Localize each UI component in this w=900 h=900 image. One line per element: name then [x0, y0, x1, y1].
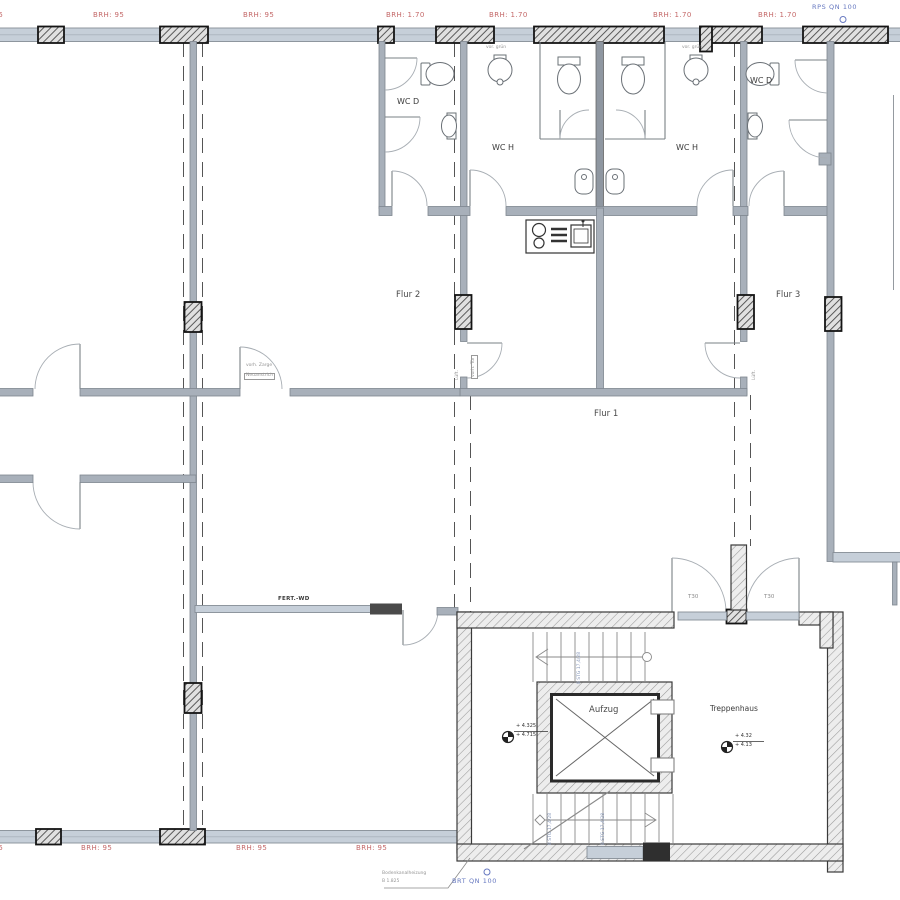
shaft-note-right: Lüft. [753, 370, 758, 380]
stair-run-label: 8 STG 17,4/28 [578, 652, 583, 684]
level-value-stair-upper: + 4.32 [735, 734, 752, 740]
shaft-note-left: Lüft. [456, 370, 461, 380]
basin-note-right: vor. grün [682, 46, 702, 51]
sill-height-label: BRH: 95 [81, 845, 112, 853]
level-value-elevator-lower: + 4.715 [516, 733, 536, 739]
sill-height-label: BRH: 95 [243, 12, 274, 20]
toilet-icon [426, 63, 454, 86]
duct-note-line1: Bodenkanalheizung [382, 872, 426, 877]
stair-run-label: 8 STG 17,4/28 [549, 813, 554, 845]
vent-annotation-bottom: BRT QN 100 [452, 878, 497, 885]
elevator-door [651, 700, 674, 714]
shaft-note-left-box: vorh. Tür [471, 355, 478, 379]
room-label-wc-h-left: WC H [492, 144, 514, 153]
vent-annotation-top: RPS QN 100 [812, 4, 857, 11]
sill-height-label: BRH: 95 [236, 845, 267, 853]
room-label-flur-2: Flur 2 [396, 291, 420, 300]
level-value-elevator-upper: + 4.325 [516, 724, 536, 730]
fire-door-label: T30 [764, 594, 774, 600]
sill-height-label: BRH: 95 [356, 845, 387, 853]
interior-walls [0, 208, 900, 615]
room-label-wc-h-right: WC H [676, 144, 698, 153]
room-label-flur-1: Flur 1 [594, 410, 618, 419]
elevator-shaft [537, 682, 674, 793]
room-label-wc-d-left: WC D [397, 98, 419, 107]
stair-flight-lower [524, 791, 673, 849]
floor-plan-linework [0, 0, 900, 900]
top-exterior-wall [0, 27, 900, 52]
kitchenette-icon [526, 220, 594, 254]
duct-note-line2: B 1.825 [382, 880, 399, 885]
room-label-wc-d-right: WC D [750, 77, 772, 86]
left-axis-wall [185, 42, 202, 831]
floor-plan-canvas: WC D WC H WC H WC D Flur 2 Flur 3 Flur 1… [0, 0, 900, 900]
level-value-stair-lower: + 4.13 [735, 743, 752, 749]
basin-note-left: vor. grün [486, 46, 506, 51]
doors [33, 58, 827, 645]
room-label-flur-3: Flur 3 [776, 291, 800, 300]
sill-height-label: BRH: 95 [0, 845, 3, 853]
stair-run-label: 8 STG 17,4/28 [602, 813, 607, 845]
sill-height-label: BRH: 95 [93, 12, 124, 20]
room-label-aufzug: Aufzug [589, 706, 618, 715]
sill-height-label: BRH: 1.70 [653, 12, 692, 20]
room-label-treppenhaus: Treppenhaus [710, 705, 758, 713]
urinal-icon [606, 169, 624, 194]
sill-height-label: BRH: 1.70 [758, 12, 797, 20]
fire-door-label: T30 [688, 594, 698, 600]
wall-type-note: FERT.-WD [278, 596, 310, 602]
elevator-door [651, 758, 674, 772]
sill-height-label: BRH: 1.70 [386, 12, 425, 20]
sill-height-label: BRH: 1.70 [489, 12, 528, 20]
stair-flight-upper [533, 632, 652, 682]
urinal-icon [575, 169, 593, 194]
bottom-exterior-wall [0, 829, 458, 845]
sill-height-label: BRH: 95 [0, 12, 3, 20]
door-note-line1: vorh. Zarge [246, 364, 272, 369]
door-note-line2: Neuanstrich [244, 373, 275, 380]
